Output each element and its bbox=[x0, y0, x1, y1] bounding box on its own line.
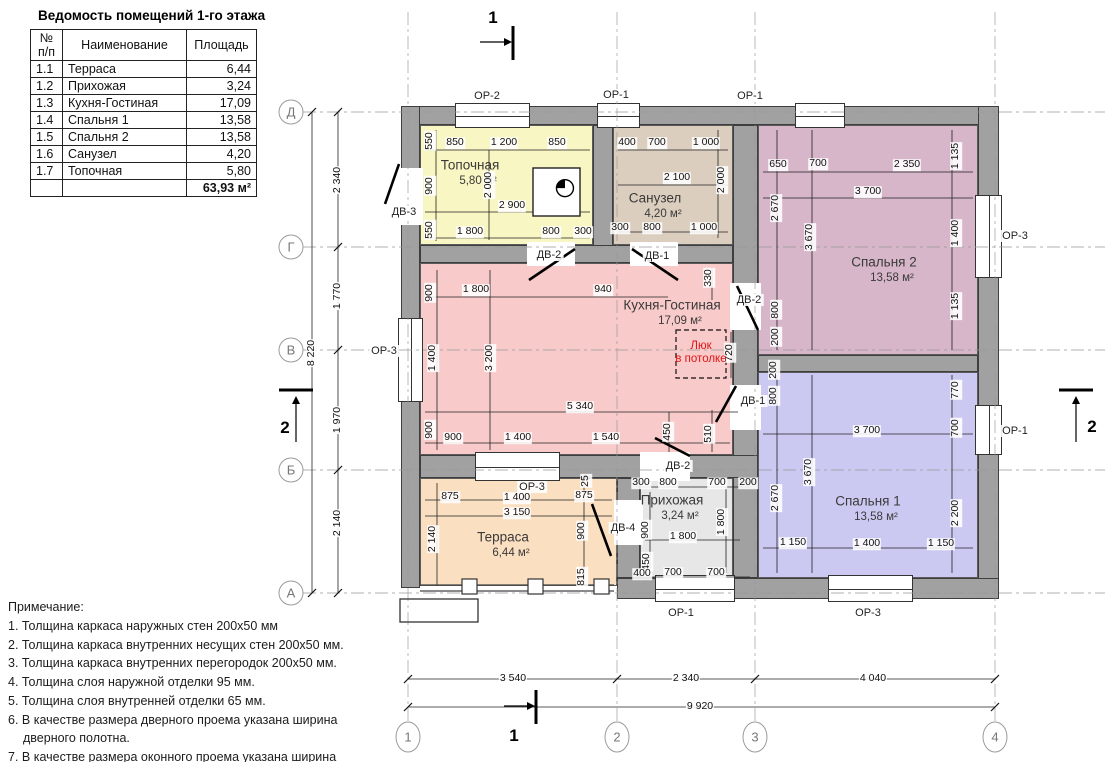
door-opening bbox=[730, 385, 761, 430]
table-row: 1.7Топочная5,80 bbox=[31, 163, 257, 180]
axis-circle: Г bbox=[279, 235, 304, 260]
note-item: 4. Толщина слоя наружной отделки 95 мм. bbox=[8, 673, 348, 692]
room-spalnya2 bbox=[758, 125, 978, 355]
dimension-label: 1 800 bbox=[716, 508, 728, 536]
dimension-label: 5 340 bbox=[566, 401, 594, 413]
dimension-label: 1 400 bbox=[504, 432, 532, 444]
note-item: 3. Толщина каркаса внутренних перегородо… bbox=[8, 654, 348, 673]
dimension-label: 1 135 bbox=[950, 292, 962, 320]
window-label: ОР-2 bbox=[472, 90, 502, 102]
door-label: ДВ-3 bbox=[390, 206, 419, 218]
dimension-label: 1 970 bbox=[332, 406, 344, 434]
table-cell: Прихожая bbox=[63, 78, 187, 95]
dimension-label: 1 400 bbox=[503, 492, 531, 504]
dimension-label: 1 150 bbox=[927, 538, 955, 550]
window-label: ОР-1 bbox=[1000, 425, 1030, 437]
axis-circle: 4 bbox=[983, 722, 1008, 753]
dimension-label: 300 bbox=[573, 226, 593, 238]
dimension-label: 1 770 bbox=[332, 282, 344, 310]
dimension-label: 2 350 bbox=[893, 159, 921, 171]
notes-list: 1. Толщина каркаса наружных стен 200х50 … bbox=[8, 617, 348, 762]
door-label: ДВ-2 bbox=[535, 249, 564, 261]
dimension-label: 1 800 bbox=[462, 284, 490, 296]
dimension-label: 700 bbox=[647, 137, 667, 149]
dimension-label: 4 040 bbox=[859, 673, 887, 685]
table-row: 1.5Спальня 213,58 bbox=[31, 129, 257, 146]
door-opening bbox=[730, 283, 761, 330]
dimension-label: 25 bbox=[580, 474, 592, 488]
note-item: 2. Толщина каркаса внутренних несущих ст… bbox=[8, 636, 348, 655]
window-opening bbox=[655, 575, 735, 602]
dimension-label: 700 bbox=[706, 567, 726, 579]
dimension-label: 3 200 bbox=[484, 344, 496, 372]
dimension-label: 900 bbox=[576, 521, 588, 541]
room-name: Прихожая bbox=[641, 493, 704, 508]
ceiling-hatch-label: Люк bbox=[690, 340, 711, 352]
table-cell: Топочная bbox=[63, 163, 187, 180]
room-name: Спальня 2 bbox=[851, 255, 917, 270]
dimension-label: 200 bbox=[770, 327, 782, 347]
dimension-label: 3 700 bbox=[853, 425, 881, 437]
dimension-label: 200 bbox=[738, 477, 758, 489]
dimension-label: 8 220 bbox=[306, 339, 318, 367]
table-cell: Терраса bbox=[63, 61, 187, 78]
axis-circle: Б bbox=[279, 458, 304, 483]
rooms-table: № п/пНаименованиеПлощадь 1.1Терраса6,441… bbox=[30, 29, 257, 197]
table-cell: 1.4 bbox=[31, 112, 63, 129]
window-opening bbox=[398, 318, 423, 402]
dimension-label: 300 bbox=[610, 222, 630, 234]
wall bbox=[978, 106, 999, 599]
room-name: Терраса bbox=[477, 530, 529, 545]
room-area: 17,09 м² bbox=[658, 315, 702, 327]
table-cell: 1.2 bbox=[31, 78, 63, 95]
table-row: 1.6Санузел4,20 bbox=[31, 146, 257, 163]
wall bbox=[733, 125, 758, 578]
dimension-label: 800 bbox=[642, 222, 662, 234]
dimension-label: 3 540 bbox=[499, 673, 527, 685]
table-cell: 13,58 bbox=[187, 129, 257, 146]
dimension-label: 400 bbox=[632, 568, 652, 580]
dimension-label: 3 150 bbox=[503, 507, 531, 519]
dimension-label: 450 bbox=[662, 422, 674, 442]
room-name: Кухня-Гостиная bbox=[623, 298, 720, 313]
dimension-label: 815 bbox=[576, 567, 588, 587]
note-item: 1. Толщина каркаса наружных стен 200х50 … bbox=[8, 617, 348, 636]
note-item: 7. В качестве размера оконного проема ук… bbox=[8, 748, 348, 762]
legend-table: Ведомость помещений 1-го этажа № п/пНаим… bbox=[30, 8, 265, 197]
table-row: 1.2Прихожая3,24 bbox=[31, 78, 257, 95]
dimension-label: 800 bbox=[770, 300, 782, 320]
floor-plan-drawing: Ведомость помещений 1-го этажа № п/пНаим… bbox=[0, 0, 1111, 762]
table-cell: Санузел bbox=[63, 146, 187, 163]
dimension-label: 2 140 bbox=[332, 509, 344, 537]
dimension-label: 2 000 bbox=[483, 171, 495, 199]
dimension-label: 770 bbox=[950, 380, 962, 400]
dimension-label: 850 bbox=[445, 137, 465, 149]
door-label: ДВ-2 bbox=[664, 460, 693, 472]
dimension-label: 2 670 bbox=[770, 484, 782, 512]
legend-title: Ведомость помещений 1-го этажа bbox=[38, 8, 265, 23]
dimension-label: 700 bbox=[663, 567, 683, 579]
table-total-row: 63,93 м² bbox=[31, 180, 257, 197]
dimension-label: 700 bbox=[707, 477, 727, 489]
dimension-label: 650 bbox=[768, 159, 788, 171]
table-cell: 1.5 bbox=[31, 129, 63, 146]
axis-circle: 1 bbox=[396, 722, 421, 753]
dimension-label: 510 bbox=[703, 424, 715, 444]
axis-circle: Д bbox=[279, 100, 304, 125]
dimension-label: 550 bbox=[424, 220, 436, 240]
table-cell: 5,80 bbox=[187, 163, 257, 180]
window-label: ОР-1 bbox=[666, 607, 696, 619]
dimension-label: 300 bbox=[631, 477, 651, 489]
dimension-label: 3 670 bbox=[803, 458, 815, 486]
dimension-label: 875 bbox=[574, 490, 594, 502]
dimension-label: 1 800 bbox=[669, 531, 697, 543]
rooms-table-header: № п/пНаименованиеПлощадь bbox=[31, 30, 257, 61]
door-label: ДВ-1 bbox=[643, 250, 672, 262]
dimension-label: 330 bbox=[703, 268, 715, 288]
dimension-label: 1 200 bbox=[490, 137, 518, 149]
rooms-table-body: 1.1Терраса6,441.2Прихожая3,241.3Кухня-Го… bbox=[31, 61, 257, 197]
axis-circle: 3 bbox=[743, 722, 768, 753]
room-area: 6,44 м² bbox=[492, 547, 529, 559]
wall bbox=[758, 355, 978, 372]
table-cell: 13,58 bbox=[187, 112, 257, 129]
dimension-label: 2 200 bbox=[950, 499, 962, 527]
column-header: № п/п bbox=[31, 30, 63, 61]
dimension-label: 1 135 bbox=[950, 142, 962, 170]
table-cell bbox=[63, 180, 187, 197]
window-label: ОР-3 bbox=[1000, 230, 1030, 242]
section-label: 1 bbox=[509, 726, 518, 746]
dimension-label: 900 bbox=[443, 432, 463, 444]
room-area: 4,20 м² bbox=[644, 208, 681, 220]
window-opening bbox=[597, 103, 640, 128]
window-opening bbox=[975, 405, 1002, 455]
table-cell: 63,93 м² bbox=[187, 180, 257, 197]
notes-title: Примечание: bbox=[8, 598, 348, 617]
section-label: 1 bbox=[488, 8, 497, 28]
dimension-label: 1 540 bbox=[592, 432, 620, 444]
dimension-label: 2 340 bbox=[332, 166, 344, 194]
dimension-label: 1 400 bbox=[853, 538, 881, 550]
dimension-label: 200 bbox=[768, 360, 780, 380]
column-header: Площадь bbox=[187, 30, 257, 61]
table-cell bbox=[31, 180, 63, 197]
dimension-label: 1 000 bbox=[692, 137, 720, 149]
room-name: Санузел bbox=[629, 191, 682, 206]
window-opening bbox=[475, 452, 560, 481]
note-item: 5. Толщина слоя внутренней отделки 65 мм… bbox=[8, 692, 348, 711]
table-cell: 1.7 bbox=[31, 163, 63, 180]
dimension-label: 900 bbox=[424, 420, 436, 440]
dimension-label: 2 100 bbox=[663, 172, 691, 184]
dimension-label: 800 bbox=[541, 226, 561, 238]
table-cell: 4,20 bbox=[187, 146, 257, 163]
window-label: ОР-3 bbox=[369, 345, 399, 357]
window-label: ОР-3 bbox=[853, 607, 883, 619]
table-cell: 1.3 bbox=[31, 95, 63, 112]
dimension-label: 1 800 bbox=[456, 226, 484, 238]
door-label: ДВ-4 bbox=[609, 522, 638, 534]
window-label: ОР-3 bbox=[517, 481, 547, 493]
table-cell: Спальня 2 bbox=[63, 129, 187, 146]
note-item: 6. В качестве размера дверного проема ук… bbox=[8, 711, 348, 749]
dimension-label: 9 920 bbox=[686, 701, 714, 713]
table-cell: 17,09 bbox=[187, 95, 257, 112]
room-area: 13,58 м² bbox=[870, 272, 914, 284]
dimension-label: 2 340 bbox=[672, 673, 700, 685]
window-opening bbox=[795, 103, 845, 128]
wall bbox=[420, 245, 733, 263]
column-header: Наименование bbox=[63, 30, 187, 61]
window-label: ОР-1 bbox=[735, 90, 765, 102]
section-label: 2 bbox=[1087, 417, 1096, 437]
table-row: 1.3Кухня-Гостиная17,09 bbox=[31, 95, 257, 112]
dimension-label: 400 bbox=[617, 137, 637, 149]
dimension-label: 850 bbox=[547, 137, 567, 149]
dimension-label: 1 150 bbox=[779, 537, 807, 549]
dimension-label: 800 bbox=[658, 477, 678, 489]
table-cell: Спальня 1 bbox=[63, 112, 187, 129]
table-row: 1.4Спальня 113,58 bbox=[31, 112, 257, 129]
dimension-label: 3 670 bbox=[804, 223, 816, 251]
dimension-label: 900 bbox=[424, 176, 436, 196]
table-cell: 3,24 bbox=[187, 78, 257, 95]
dimension-label: 900 bbox=[640, 520, 652, 540]
dimension-label: 2 000 bbox=[716, 166, 728, 194]
dimension-label: 940 bbox=[593, 284, 613, 296]
dimension-label: 700 bbox=[808, 158, 828, 170]
dimension-label: 2 900 bbox=[498, 200, 526, 212]
table-cell: 1.1 bbox=[31, 61, 63, 78]
section-label: 2 bbox=[280, 418, 289, 438]
dimension-label: 800 bbox=[768, 386, 780, 406]
dimension-label: 3 700 bbox=[854, 186, 882, 198]
room-area: 3,24 м² bbox=[661, 510, 698, 522]
dimension-label: 1 400 bbox=[950, 219, 962, 247]
table-cell: 1.6 bbox=[31, 146, 63, 163]
dimension-label: 2 670 bbox=[770, 194, 782, 222]
axis-circle: В bbox=[279, 338, 304, 363]
window-opening bbox=[828, 575, 913, 602]
door-label: ДВ-1 bbox=[739, 395, 768, 407]
window-opening bbox=[975, 195, 1002, 278]
table-cell: 6,44 bbox=[187, 61, 257, 78]
dimension-label: 900 bbox=[424, 283, 436, 303]
dimension-label: 2 140 bbox=[427, 525, 439, 553]
table-row: 1.1Терраса6,44 bbox=[31, 61, 257, 78]
notes-block: Примечание: 1. Толщина каркаса наружных … bbox=[8, 598, 348, 762]
ceiling-hatch-label: в потолке bbox=[675, 353, 726, 365]
table-cell: Кухня-Гостиная bbox=[63, 95, 187, 112]
window-label: ОР-1 bbox=[601, 89, 631, 101]
axis-circle: 2 bbox=[605, 722, 630, 753]
dimension-label: 550 bbox=[424, 131, 436, 151]
dimension-label: 875 bbox=[440, 491, 460, 503]
room-name: Спальня 1 bbox=[835, 494, 901, 509]
room-area: 13,58 м² bbox=[854, 511, 898, 523]
dimension-label: 1 000 bbox=[690, 222, 718, 234]
door-label: ДВ-2 bbox=[735, 294, 764, 306]
dimension-label: 700 bbox=[950, 418, 962, 438]
dimension-label: 1 400 bbox=[427, 344, 439, 372]
window-opening bbox=[455, 103, 530, 128]
